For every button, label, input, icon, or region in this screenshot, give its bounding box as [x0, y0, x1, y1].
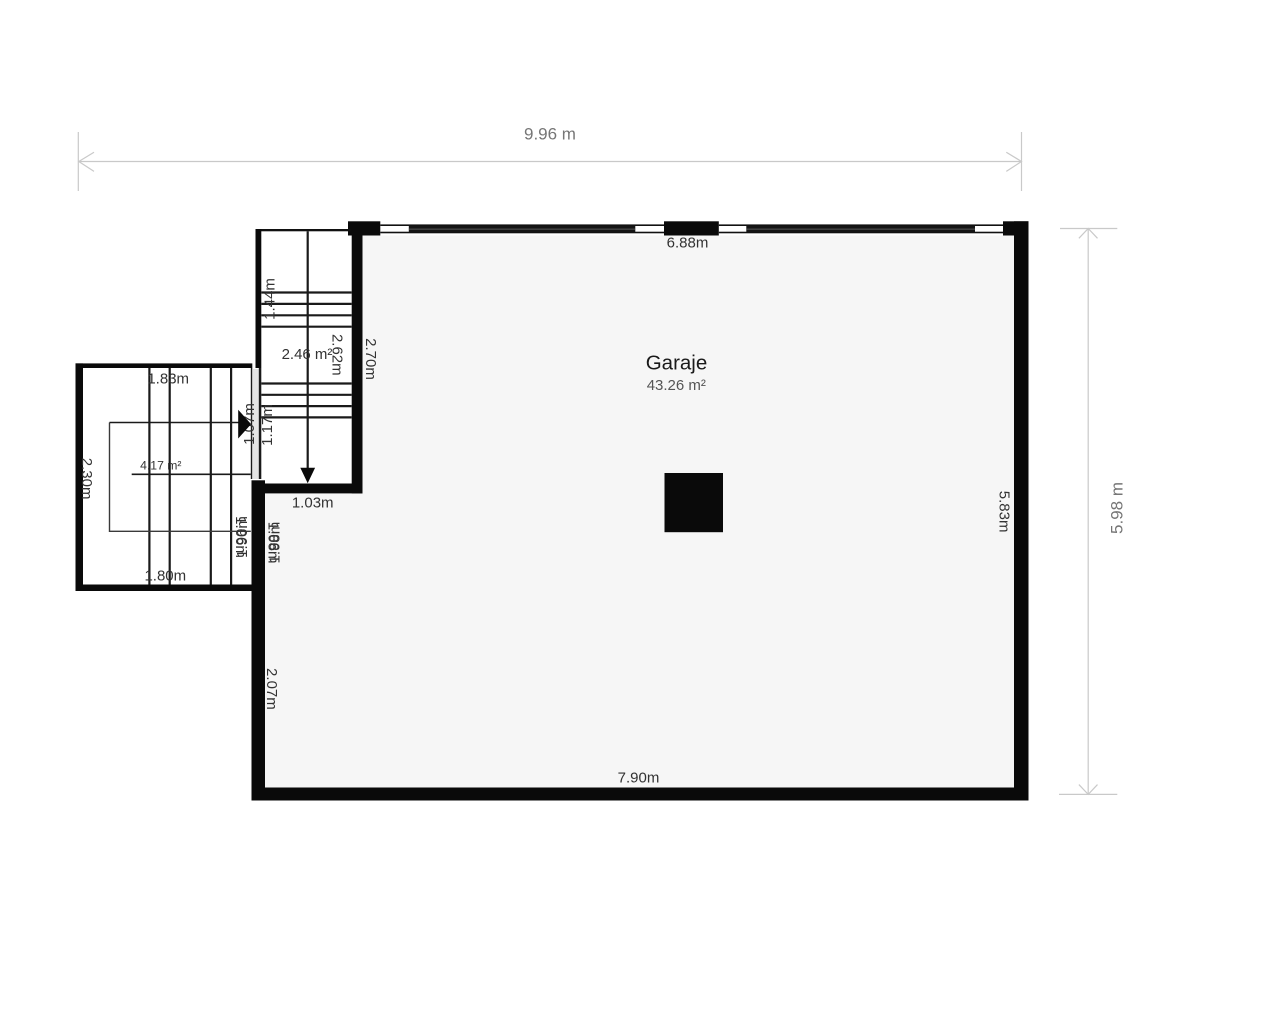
svg-text:2.62m: 2.62m	[329, 334, 346, 376]
svg-text:4.17 m²: 4.17 m²	[140, 459, 181, 473]
svg-text:1.17m: 1.17m	[259, 404, 276, 446]
svg-text:1.06m: 1.06m	[232, 516, 249, 558]
svg-text:2.30m: 2.30m	[78, 458, 95, 500]
svg-text:6.88m: 6.88m	[667, 235, 709, 252]
svg-text:Garaje: Garaje	[646, 352, 708, 375]
svg-text:1.44m: 1.44m	[261, 278, 278, 320]
svg-text:1.80m: 1.80m	[144, 568, 186, 585]
svg-text:43.26 m²: 43.26 m²	[647, 377, 706, 394]
svg-text:2.07m: 2.07m	[263, 668, 280, 710]
svg-text:1.08m: 1.08m	[264, 522, 281, 564]
svg-text:2.70m: 2.70m	[362, 338, 379, 380]
svg-text:1.83m: 1.83m	[147, 370, 189, 387]
svg-text:5.83m: 5.83m	[996, 491, 1013, 533]
svg-text:1.03m: 1.03m	[292, 495, 334, 512]
svg-text:7.90m: 7.90m	[618, 770, 660, 787]
svg-text:5.98 m: 5.98 m	[1108, 482, 1127, 534]
svg-text:2.46 m²: 2.46 m²	[282, 346, 333, 363]
svg-text:9.96 m: 9.96 m	[524, 125, 576, 144]
